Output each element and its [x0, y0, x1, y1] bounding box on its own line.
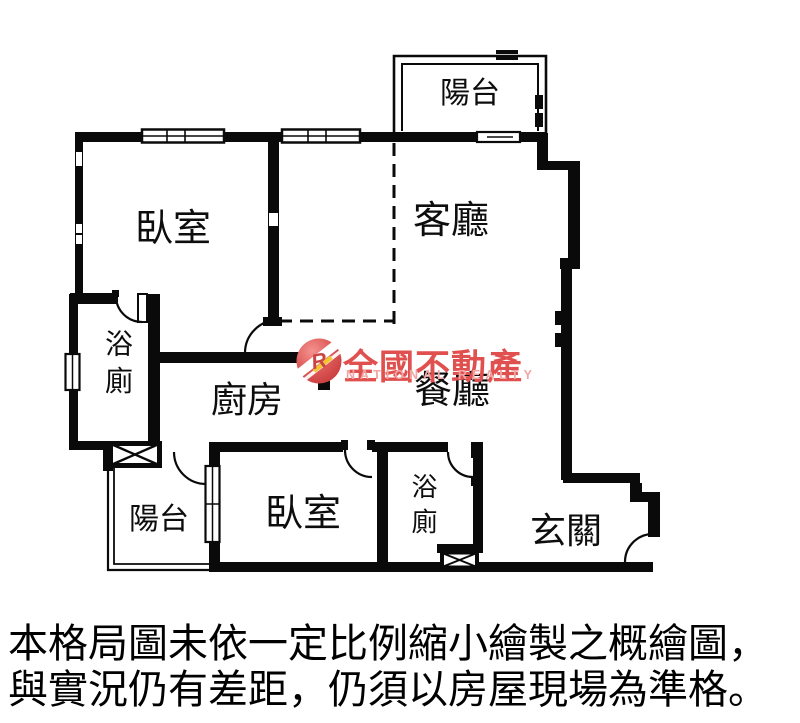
room-label-living-room: 客廳 [413, 202, 489, 240]
room-label-balcony-lower: 陽台 [129, 505, 189, 535]
room-label-kitchen: 廚房 [211, 382, 283, 418]
room-label-bedroom-second: 臥室 [265, 495, 341, 533]
dashed-boundaries [279, 143, 394, 331]
room-label-bathroom-second: 浴廁 [409, 473, 435, 543]
windows [66, 130, 521, 543]
floorplan-page: 陽台 臥室 客廳 浴廁 廚房 餐廳 陽台 臥室 浴廁 玄關 R 全國不動產 [0, 0, 800, 723]
room-label-bathroom-main: 浴廁 [102, 329, 130, 403]
room-label-bedroom-main: 臥室 [135, 210, 211, 248]
room-label-dining-room: 餐廳 [414, 372, 490, 410]
room-label-balcony-top: 陽台 [440, 79, 500, 109]
room-label-entry: 玄關 [530, 513, 602, 549]
disclaimer-line-2: 與實況仍有差距，仍須以房屋現場為準格。 [8, 657, 796, 715]
